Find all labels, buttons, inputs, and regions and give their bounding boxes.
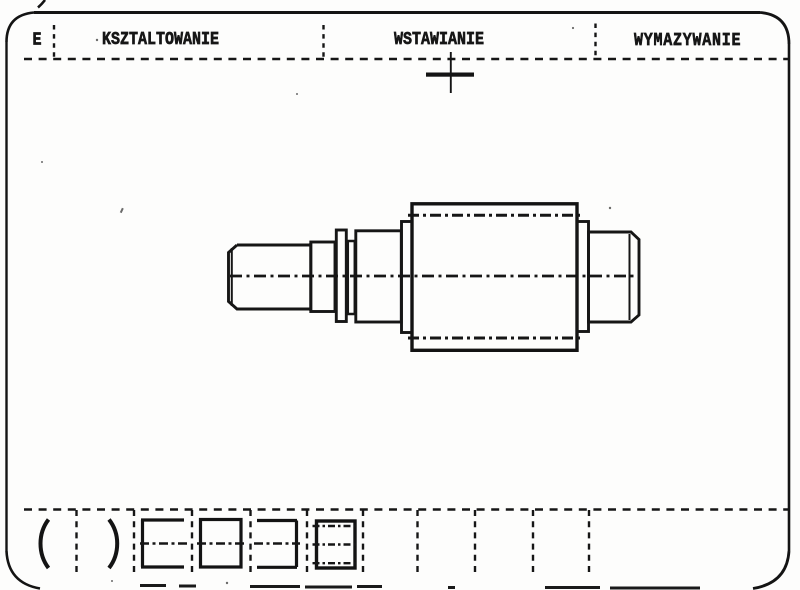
svg-text:WYMAZYWANIE: WYMAZYWANIE xyxy=(634,31,741,52)
svg-text:E: E xyxy=(33,30,42,51)
svg-text:WSTAWIANIE: WSTAWIANIE xyxy=(394,30,484,51)
svg-text:KSZTALTOWANIE: KSZTALTOWANIE xyxy=(102,30,219,51)
